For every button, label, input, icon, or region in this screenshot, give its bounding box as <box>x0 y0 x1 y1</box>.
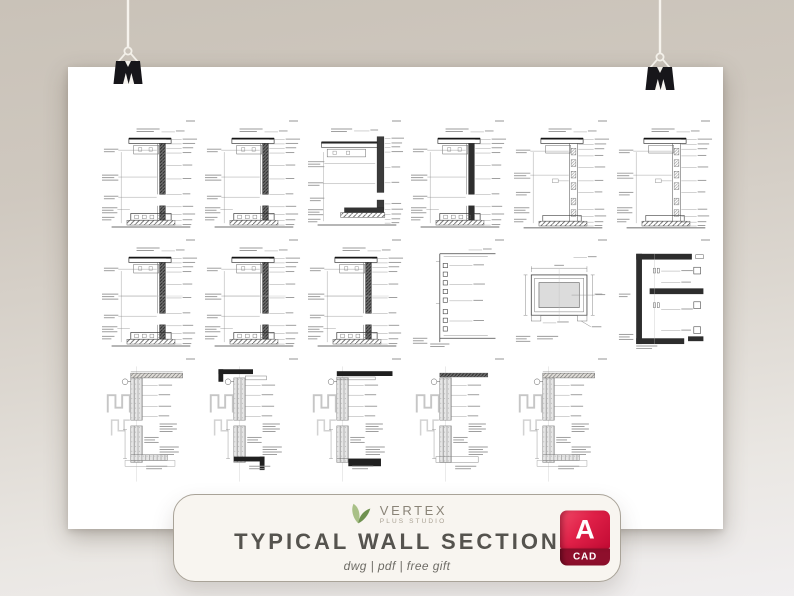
wall-section-drawing <box>617 242 713 352</box>
drawing-row <box>102 361 723 487</box>
vertex-leaf-icon <box>347 501 375 529</box>
wall-section-drawing <box>411 123 507 233</box>
poster-sheet <box>68 67 723 529</box>
cell-reference-mark <box>495 358 504 360</box>
cell-reference-mark <box>598 358 607 360</box>
drawing-grid <box>68 67 723 487</box>
wall-section-drawing <box>102 242 198 352</box>
autocad-letter: A <box>560 511 610 549</box>
product-title: TYPICAL WALL SECTION <box>234 529 560 555</box>
wall-section-drawing <box>205 123 301 233</box>
wall-section-drawing <box>205 361 301 487</box>
cell-reference-mark <box>289 358 298 360</box>
cell-reference-mark <box>392 358 401 360</box>
wall-section-drawing <box>308 242 404 352</box>
formats-subtitle: dwg | pdf | free gift <box>344 559 451 573</box>
binder-clip-right-icon <box>640 0 680 94</box>
cell-reference-mark <box>598 120 607 122</box>
cell-reference-mark <box>495 120 504 122</box>
cell-reference-mark <box>186 239 195 241</box>
cell-reference-mark <box>495 239 504 241</box>
wall-section-drawing <box>102 123 198 233</box>
wall-section-drawing <box>308 361 404 487</box>
cell-reference-mark <box>289 239 298 241</box>
scene: { "scene": { "background_top_color": "#c… <box>0 0 794 596</box>
wall-section-drawing <box>514 242 610 352</box>
empty-cell <box>617 361 713 487</box>
cell-reference-mark <box>598 239 607 241</box>
wall-section-drawing <box>205 242 301 352</box>
cell-reference-mark <box>392 120 401 122</box>
drawing-row <box>102 242 723 352</box>
cell-reference-mark <box>186 358 195 360</box>
cell-reference-mark <box>701 120 710 122</box>
cell-reference-mark <box>289 120 298 122</box>
wall-section-drawing <box>514 361 610 487</box>
autocad-label: CAD <box>560 549 610 566</box>
cell-reference-mark <box>701 239 710 241</box>
cell-reference-mark <box>186 120 195 122</box>
wall-section-drawing <box>308 123 404 233</box>
autocad-badge: A CAD <box>560 511 610 566</box>
wall-section-drawing <box>411 361 507 487</box>
binder-clip-left-icon <box>108 0 148 88</box>
brand-name: VERTEX <box>380 504 447 517</box>
wall-section-drawing <box>411 242 507 352</box>
vertex-logo: VERTEX PLUS STUDIO <box>347 502 447 528</box>
cell-reference-mark <box>392 239 401 241</box>
brand-subtitle: PLUS STUDIO <box>380 519 446 526</box>
wall-section-drawing <box>102 361 198 487</box>
wall-section-drawing <box>514 123 610 233</box>
product-card: VERTEX PLUS STUDIO TYPICAL WALL SECTION … <box>173 494 621 582</box>
drawing-row <box>102 123 723 233</box>
wall-section-drawing <box>617 123 713 233</box>
